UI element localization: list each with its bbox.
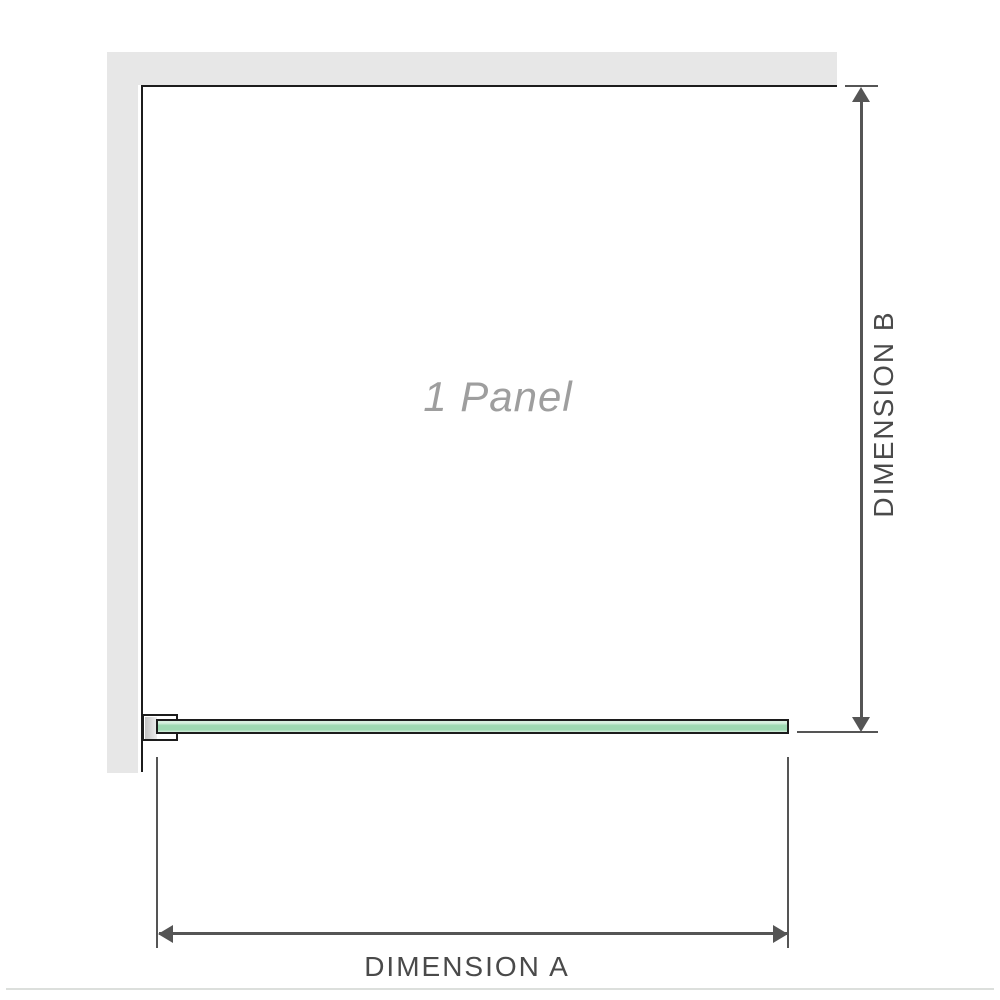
dimension-b-line <box>860 97 863 721</box>
panel-outline-top-line <box>142 85 837 87</box>
dimension-b-label: DIMENSION B <box>868 264 900 564</box>
dimension-a-arrow-right-icon <box>773 925 788 943</box>
panel-outline-left-line <box>141 85 143 772</box>
dimension-b-arrow-down-icon <box>852 717 870 732</box>
dimension-a-line <box>159 932 787 935</box>
glass-panel <box>156 719 789 734</box>
dimension-b-arrow-up-icon <box>852 87 870 102</box>
panel-watermark: 1 Panel <box>298 370 698 424</box>
shower-screen-diagram: 1 Panel DIMENSION B DIMENSION A <box>0 0 1000 1000</box>
dimension-a-arrow-left-icon <box>158 925 173 943</box>
page-bottom-divider <box>6 988 994 990</box>
wall-top <box>107 52 837 85</box>
dimension-a-label: DIMENSION A <box>217 950 717 984</box>
dimension-a-extension-tick-right <box>787 757 789 948</box>
wall-left <box>107 52 138 773</box>
dimension-a-extension-tick-left <box>156 757 158 948</box>
